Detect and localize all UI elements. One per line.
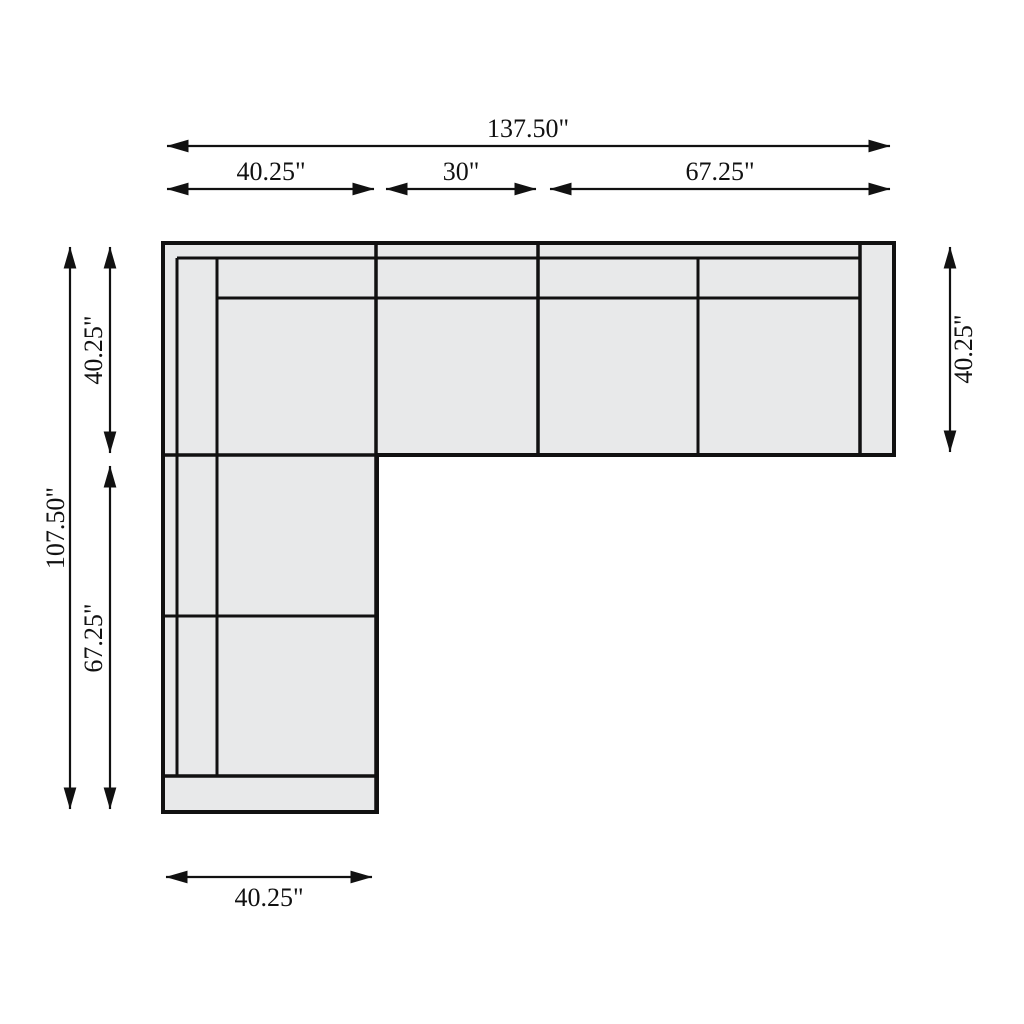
dim-top-segment-3-label: 67.25" bbox=[685, 157, 754, 186]
dim-left-segment-1-label: 40.25" bbox=[79, 315, 108, 384]
dim-top-segment-1-label: 40.25" bbox=[236, 157, 305, 186]
dim-top-total: 137.50" bbox=[167, 114, 890, 146]
sofa-plan bbox=[163, 243, 894, 812]
dim-top-segment-2: 30" bbox=[386, 157, 536, 189]
dim-top-segment-1: 40.25" bbox=[167, 157, 374, 189]
sofa-dimension-diagram: 137.50" 40.25" 30" 67.25" 107.50" 40.25" bbox=[0, 0, 1024, 1024]
diagram-svg: 137.50" 40.25" 30" 67.25" 107.50" 40.25" bbox=[0, 0, 1024, 1024]
dim-left-segment-2: 67.25" bbox=[79, 466, 110, 809]
dim-left-total: 107.50" bbox=[41, 247, 70, 809]
dim-right-side: 40.25" bbox=[949, 247, 978, 452]
dim-right-side-label: 40.25" bbox=[949, 314, 978, 383]
dim-left-segment-1: 40.25" bbox=[79, 247, 110, 453]
dim-top-segment-2-label: 30" bbox=[443, 157, 480, 186]
dim-top-total-label: 137.50" bbox=[487, 114, 569, 143]
dim-top-segment-3: 67.25" bbox=[550, 157, 890, 189]
dim-left-total-label: 107.50" bbox=[41, 487, 70, 569]
dim-left-segment-2-label: 67.25" bbox=[79, 603, 108, 672]
sofa-outline bbox=[163, 243, 894, 812]
dim-bottom-label: 40.25" bbox=[234, 883, 303, 912]
dim-bottom: 40.25" bbox=[166, 877, 372, 912]
